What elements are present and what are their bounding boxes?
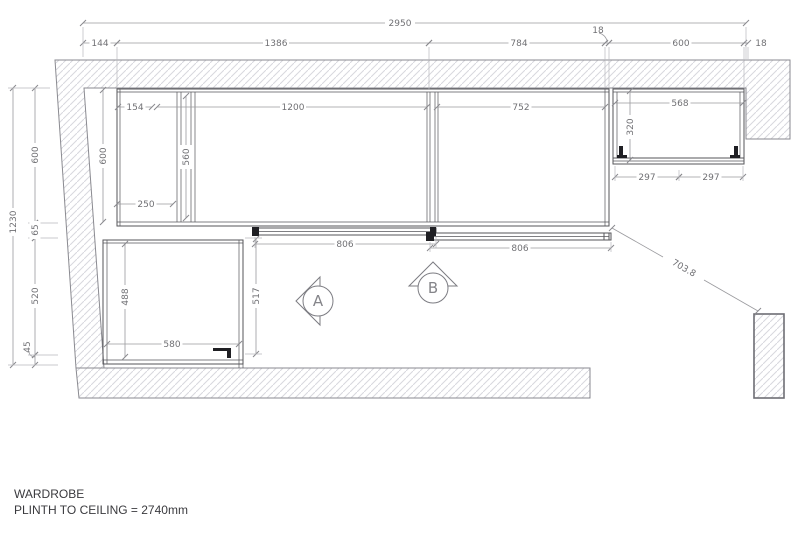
door-end-cap bbox=[426, 232, 434, 241]
dim-top-18a: 18 bbox=[592, 26, 604, 36]
dim-left-65: 65 bbox=[31, 224, 41, 235]
dim-703-8: 703.8 bbox=[670, 258, 698, 280]
section-marker-b-label: B bbox=[428, 279, 438, 297]
sliding-door-panel-2 bbox=[428, 233, 611, 240]
section-marker-a: A bbox=[296, 277, 333, 325]
dim-left-45: 45 bbox=[23, 341, 33, 352]
dim-752: 752 bbox=[512, 103, 529, 113]
dim-250: 250 bbox=[137, 200, 154, 210]
door-end-cap bbox=[252, 227, 259, 236]
sliding-door-panel-1 bbox=[255, 228, 436, 235]
title-line-1: WARDROBE bbox=[14, 487, 84, 501]
section-markers: A B bbox=[296, 262, 457, 325]
dim-overall-width: 2950 bbox=[389, 19, 412, 29]
dim-568: 568 bbox=[671, 99, 688, 109]
wall-bottom bbox=[76, 368, 590, 398]
drawing-title: WARDROBE PLINTH TO CEILING = 2740mm bbox=[14, 487, 188, 517]
dim-depth-600: 600 bbox=[99, 147, 109, 164]
section-marker-a-label: A bbox=[313, 292, 324, 310]
cabinets bbox=[103, 89, 744, 368]
dim-297-right: 297 bbox=[702, 173, 719, 183]
hinge-icon bbox=[617, 146, 627, 158]
dim-320: 320 bbox=[626, 118, 636, 135]
dim-488: 488 bbox=[121, 288, 131, 305]
dim-580: 580 bbox=[163, 340, 180, 350]
dim-806-right: 806 bbox=[511, 244, 528, 254]
hinge-icon bbox=[730, 146, 740, 158]
section-marker-b: B bbox=[409, 262, 457, 303]
cad-canvas: 2950 144 1386 784 18 600 18 1230 600 65 … bbox=[0, 0, 800, 533]
dim-154: 154 bbox=[126, 103, 143, 113]
dim-top-600: 600 bbox=[672, 39, 689, 49]
dim-517: 517 bbox=[252, 287, 262, 304]
dim-left-600: 600 bbox=[31, 146, 41, 163]
dim-top-1386: 1386 bbox=[265, 39, 288, 49]
dim-left-520: 520 bbox=[31, 287, 41, 304]
hardware bbox=[213, 146, 740, 358]
dim-806-left: 806 bbox=[336, 240, 353, 250]
dim-left-total: 1230 bbox=[9, 210, 19, 233]
dim-top-144: 144 bbox=[91, 39, 108, 49]
dim-top-784: 784 bbox=[510, 39, 527, 49]
title-line-2: PLINTH TO CEILING = 2740mm bbox=[14, 503, 188, 517]
wall-right-stub bbox=[754, 314, 784, 398]
dim-top-18b: 18 bbox=[755, 39, 767, 49]
hinge-icon bbox=[213, 348, 231, 358]
dim-1200: 1200 bbox=[282, 103, 305, 113]
wardrobe-plan-drawing: 2950 144 1386 784 18 600 18 1230 600 65 … bbox=[0, 0, 800, 533]
dim-297-left: 297 bbox=[638, 173, 655, 183]
dim-560: 560 bbox=[182, 148, 192, 165]
